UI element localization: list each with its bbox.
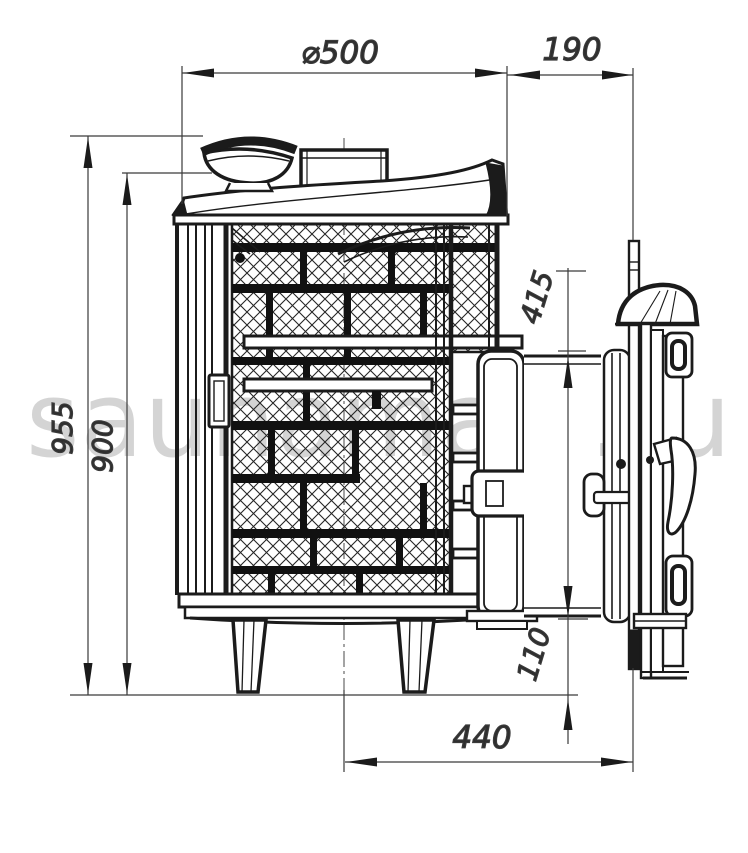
dim-label-body-height: 900 (86, 419, 119, 472)
dim-label-axis-to-flange: 440 (452, 720, 511, 756)
firebox-tunnel (453, 350, 634, 629)
tunnel-clamp (464, 471, 530, 516)
dim-label-tunnel-length: 190 (542, 32, 601, 68)
tunnel-barrel (524, 350, 634, 622)
side-latch (209, 375, 229, 427)
stove-drawing-canvas: saunamart.ru (0, 0, 748, 853)
dim-label-diameter: ⌀500 (301, 35, 379, 71)
technical-drawing-page: saunamart.ru (0, 0, 748, 853)
dim-label-total-height: 955 (46, 401, 79, 454)
door-top-hinge (666, 333, 692, 377)
